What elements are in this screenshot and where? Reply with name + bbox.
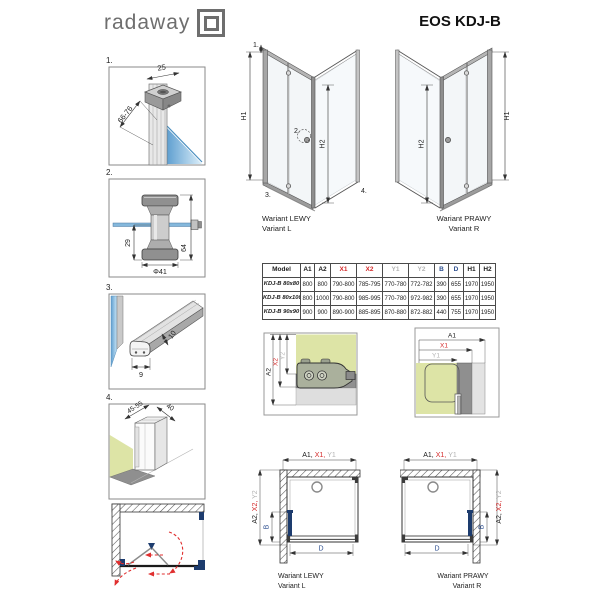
dimension-table: Model A1 A2 X1 X2 Y1 Y2 B D H1 H2 KDJ-B …: [262, 263, 496, 320]
dim-label-side: A2, X2, Y2: [496, 490, 503, 523]
dim-label-d: D: [434, 546, 439, 553]
dim-label-y2: Y2: [280, 352, 287, 360]
spec-sheet-page: radaway EOS KDJ-B 1.: [0, 0, 600, 600]
enclosure-geometry-mirrored: [396, 48, 510, 211]
cell: 1970: [464, 292, 480, 306]
table-row: KDJ-B 90x90 900 900 890-900 885-895 870-…: [263, 306, 496, 320]
detail-4-number: 4.: [106, 393, 113, 402]
dim-label-x2: X2: [273, 358, 280, 366]
dim-label-x1: X1: [440, 343, 448, 350]
plan-view-variant-r: A1,X1,Y1 A2, X2, Y2 B D Wariant PRAWY Va…: [400, 448, 525, 598]
cell: 800: [315, 278, 331, 292]
slot-insert: [458, 396, 461, 414]
dim-label-h2: H2: [320, 139, 327, 148]
plan-view-variant-l: A1,X1,Y1 A2, X2, Y2 B D Wariant LEWY Var…: [250, 448, 375, 598]
cell: 770-780: [383, 292, 409, 306]
model-name: KDJ-B 80x100: [263, 292, 301, 306]
dim-label-h1: H1: [241, 111, 248, 120]
cell: 972-982: [409, 292, 435, 306]
variant-caption-en: Variant R: [449, 224, 480, 233]
cell: 655: [449, 278, 464, 292]
detail-4-wall-profile: 4. 45-55 40: [105, 391, 207, 503]
model-name: KDJ-B 80x80: [263, 278, 301, 292]
detail-1-profile-section: 1. 25 66-76: [105, 54, 207, 167]
glass-block: [472, 363, 485, 414]
enclosure-geometry: [263, 48, 360, 211]
page-title: EOS KDJ-B: [400, 13, 520, 30]
table-row: KDJ-B 80x100 800 1000 790-800 985-995 77…: [263, 292, 496, 306]
cell: 772-782: [409, 278, 435, 292]
col-d: D: [449, 264, 464, 278]
model-name: KDJ-B 90x90: [263, 306, 301, 320]
iso-view-variant-r: H1 H2 Wariant PRAWY Variant R: [378, 40, 533, 240]
dim-label-a1: A1: [448, 333, 456, 340]
brand-logo: radaway: [104, 9, 225, 37]
drain-circle: [428, 482, 438, 492]
dim-label-top: A1,X1,Y1: [302, 452, 336, 459]
cell: 440: [435, 306, 449, 320]
col-h2: H2: [480, 264, 496, 278]
dim-label-h1: H1: [504, 111, 511, 120]
cell: 800: [301, 278, 315, 292]
variant-caption-en: Variant L: [262, 224, 291, 233]
detail-2-knob-section: 2. 29 Φ41 64: [105, 166, 207, 279]
col-h1: H1: [464, 264, 480, 278]
variant-caption-en: Variant R: [453, 583, 482, 590]
callout-2: 2.: [294, 128, 300, 135]
cell: 872-882: [409, 306, 435, 320]
detail-3-threshold-section: 3. 9 10: [105, 281, 207, 391]
cell: 1950: [480, 292, 496, 306]
wall-left-hatch: [280, 470, 287, 563]
wall-top-hatch: [112, 504, 204, 512]
cell: 755: [449, 306, 464, 320]
cell: 900: [301, 306, 315, 320]
dim-label-side: A2, X2, Y2: [252, 490, 259, 523]
col-a2: A2: [315, 264, 331, 278]
wall-top-hatch: [400, 470, 480, 477]
col-a1: A1: [301, 264, 315, 278]
variant-caption-pl: Wariant LEWY: [278, 573, 324, 580]
cell: 1970: [464, 278, 480, 292]
cell: 770-780: [383, 278, 409, 292]
detail-2-number: 2.: [106, 168, 113, 177]
cell: 390: [435, 278, 449, 292]
door-swing-diagram: [106, 502, 218, 600]
dim-label-dia41: Φ41: [153, 267, 167, 276]
swing-direction-arrows: [115, 532, 183, 585]
profile-3d-drawing: [135, 417, 167, 470]
iso-view-variant-l: H1 H2 1. 2. 3. 4. Wariant LEWY Variant L: [222, 40, 377, 240]
dim-label-9: 9: [139, 370, 143, 379]
cell: 1000: [315, 292, 331, 306]
cell: 890-900: [331, 306, 357, 320]
cell: 655: [449, 292, 464, 306]
cell: 1950: [480, 306, 496, 320]
cell: 985-995: [357, 292, 383, 306]
dim-label-b: B: [479, 524, 486, 529]
dim-label-b: B: [264, 524, 271, 529]
table-row: KDJ-B 80x80 800 800 790-800 785-795 770-…: [263, 278, 496, 292]
cell: 885-895: [357, 306, 383, 320]
cell: 390: [435, 292, 449, 306]
detail-1-number: 1.: [106, 56, 113, 65]
wall-right-hatch: [473, 470, 480, 563]
dim-label-d: D: [318, 546, 323, 553]
callout-1: 1.: [253, 42, 259, 49]
dim-label-a2: A2: [266, 368, 273, 376]
wall-top-hatch: [280, 470, 360, 477]
dim-label-29: 29: [125, 239, 132, 247]
section-detail-horizontal: A1 X1 Y1: [413, 326, 501, 419]
cell: 1950: [480, 278, 496, 292]
dim-label-64: 64: [181, 244, 188, 252]
col-x2: X2: [357, 264, 383, 278]
cell: 870-880: [383, 306, 409, 320]
variant-caption-pl: Wariant PRAWY: [437, 214, 492, 223]
cell: 785-795: [357, 278, 383, 292]
cell: 900: [315, 306, 331, 320]
brand-logo-text: radaway: [104, 11, 190, 35]
cell: 800: [301, 292, 315, 306]
cell: 1970: [464, 306, 480, 320]
col-y1: Y1: [383, 264, 409, 278]
variant-caption-pl: Wariant PRAWY: [437, 573, 489, 580]
dim-label-top: A1,X1,Y1: [423, 452, 457, 459]
dim-label-h2: H2: [419, 139, 426, 148]
dim-label-y1: Y1: [432, 353, 440, 360]
detail-3-number: 3.: [106, 283, 113, 292]
table-header-row: Model A1 A2 X1 X2 Y1 Y2 B D H1 H2: [263, 264, 496, 278]
wall-green: [416, 363, 457, 414]
dim-label-25: 25: [157, 62, 167, 72]
col-b: B: [435, 264, 449, 278]
variant-caption-en: Variant L: [278, 583, 306, 590]
brand-logo-icon: [197, 9, 225, 37]
cell: 790-800: [331, 278, 357, 292]
col-x1: X1: [331, 264, 357, 278]
wall-left-hatch: [112, 504, 120, 576]
callout-3: 3.: [265, 192, 271, 199]
callout-4: 4.: [361, 188, 367, 195]
drain-circle: [312, 482, 322, 492]
cell: 790-800: [331, 292, 357, 306]
variant-caption-pl: Wariant LEWY: [262, 214, 311, 223]
glass-band: [296, 388, 356, 405]
section-detail-vertical: A2 X2 Y2: [263, 330, 358, 418]
col-y2: Y2: [409, 264, 435, 278]
col-model: Model: [263, 264, 301, 278]
